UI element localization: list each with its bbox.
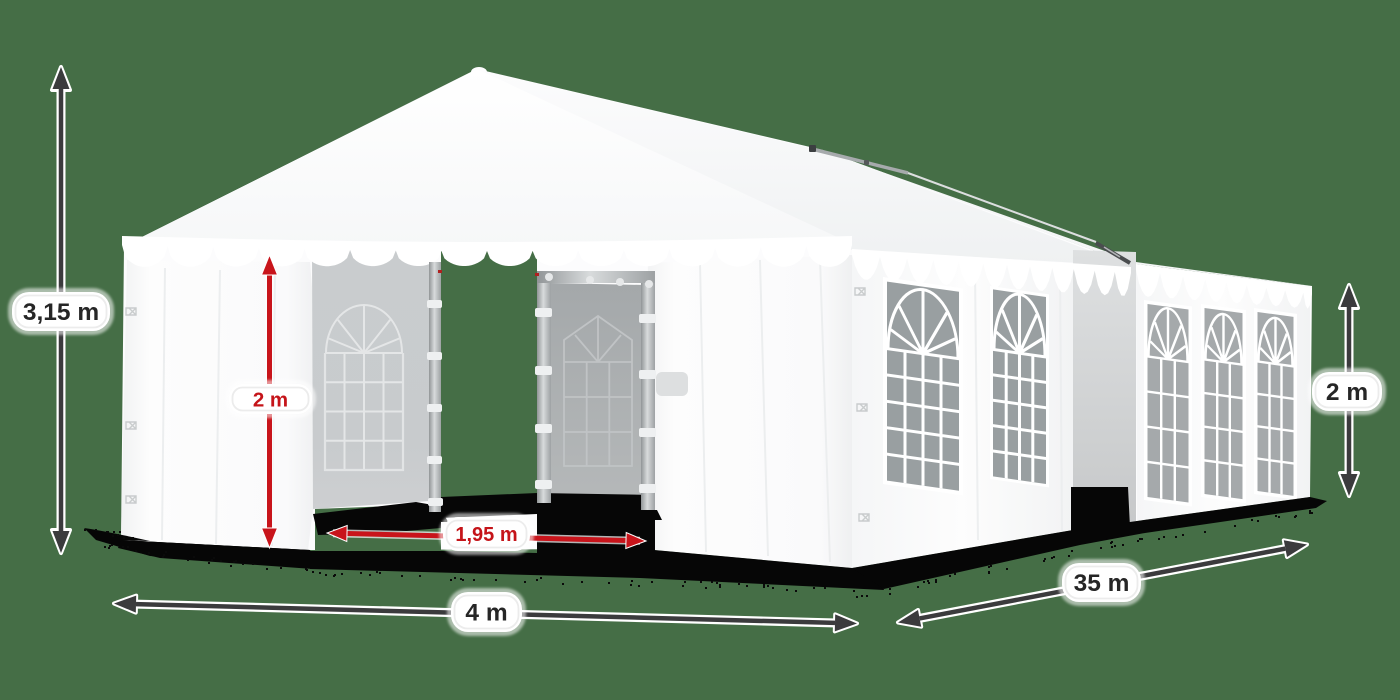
svg-text:2 m: 2 m [1326,379,1368,406]
svg-text:4 m: 4 m [465,600,507,627]
svg-text:2 m: 2 m [253,388,288,411]
svg-text:35 m: 35 m [1074,570,1130,597]
svg-text:3,15 m: 3,15 m [23,299,99,326]
svg-text:1,95 m: 1,95 m [455,524,517,546]
